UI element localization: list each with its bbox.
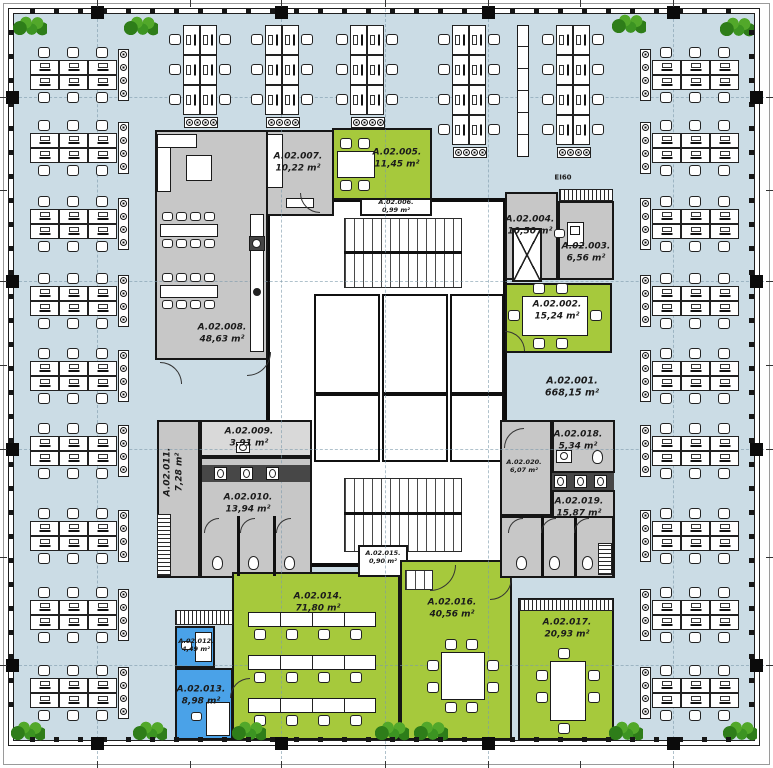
office-desk — [59, 133, 88, 148]
plant-pot-icon — [567, 149, 574, 156]
plant-pot-icon — [642, 90, 649, 97]
chair — [689, 393, 701, 404]
chair — [689, 710, 701, 721]
office-desk — [681, 361, 710, 376]
chair — [67, 423, 79, 434]
chair — [660, 393, 672, 404]
facade-mullion — [222, 737, 227, 742]
chair — [67, 196, 79, 207]
room-label-a02013: A.02.013.8,98 m² — [177, 684, 226, 707]
room-number: A.02.004. — [506, 214, 555, 226]
plant-pot-icon — [642, 150, 649, 157]
chair — [301, 94, 313, 105]
chair — [38, 273, 50, 284]
sink-basin-icon — [217, 469, 224, 478]
chair — [718, 553, 730, 564]
core-shaft-room — [382, 294, 448, 394]
office-desk — [681, 600, 710, 615]
facade-mullion — [9, 30, 14, 35]
chair — [718, 120, 730, 131]
facade-mullion — [749, 30, 754, 35]
grid-tick — [766, 665, 773, 666]
office-desk — [556, 25, 573, 55]
facade-mullion — [78, 737, 83, 742]
office-desk — [88, 224, 117, 239]
grid-tick — [0, 665, 7, 666]
office-desk — [681, 301, 710, 316]
plant-pot-icon — [120, 137, 127, 144]
office-desk — [30, 376, 59, 391]
chair — [554, 229, 565, 238]
office-desk — [710, 75, 739, 90]
office-desk — [88, 301, 117, 316]
grid-tick — [0, 281, 7, 282]
chair — [445, 702, 457, 713]
facade-mullion — [749, 702, 754, 707]
office-desk — [88, 678, 117, 693]
office-desk — [88, 536, 117, 551]
grid-tick — [0, 365, 7, 366]
chair — [67, 553, 79, 564]
chair — [689, 165, 701, 176]
plant-pot-icon — [202, 119, 209, 126]
chair — [660, 553, 672, 564]
office-desk — [710, 209, 739, 224]
chair — [487, 682, 499, 693]
chair — [592, 94, 604, 105]
room-area: 15,24 m² — [533, 311, 582, 323]
plant-pot-icon — [120, 708, 127, 715]
plant-pot-icon — [120, 213, 127, 220]
grid-tick — [0, 557, 7, 558]
room-area: 11,45 m² — [373, 159, 422, 171]
office-desk — [30, 436, 59, 451]
plant-pot-icon — [292, 119, 299, 126]
plant-pot-icon — [120, 290, 127, 297]
plant-pot-icon — [120, 352, 127, 359]
printer-icon — [570, 226, 580, 235]
grid-tick — [488, 761, 489, 768]
plant-pot-icon — [642, 239, 649, 246]
chair — [718, 508, 730, 519]
facade-mullion — [9, 702, 14, 707]
office-desk — [30, 148, 59, 163]
chair — [718, 165, 730, 176]
plant-pot-icon — [120, 604, 127, 611]
chair — [38, 241, 50, 252]
facade-mullion — [749, 78, 754, 83]
room-number: A.02.003. — [562, 241, 611, 253]
stall-partition — [237, 516, 240, 576]
chair — [67, 318, 79, 329]
room-number: A.02.001. — [545, 376, 599, 388]
plant-pot-icon — [120, 239, 127, 246]
chair — [718, 710, 730, 721]
office-desk — [652, 209, 681, 224]
plant-pot-icon — [642, 669, 649, 676]
room-area: 7,28 m² — [174, 448, 186, 497]
chair — [67, 665, 79, 676]
facade-mullion — [510, 737, 515, 742]
office-desk — [265, 55, 282, 85]
room-area: 6,56 m² — [562, 253, 611, 265]
facade-mullion — [54, 9, 59, 14]
office-desk — [710, 693, 739, 708]
chair — [592, 124, 604, 135]
chair — [176, 212, 187, 221]
office-desk — [652, 133, 681, 148]
facade-mullion — [749, 510, 754, 515]
chair — [533, 283, 545, 294]
office-desk — [88, 376, 117, 391]
chair — [718, 47, 730, 58]
plant-pot-icon — [642, 124, 649, 131]
office-desk — [652, 536, 681, 551]
column — [667, 6, 680, 19]
grid-axis — [488, 4, 489, 764]
facade-mullion — [294, 9, 299, 14]
facade-mullion — [749, 606, 754, 611]
column — [91, 737, 104, 750]
office-desk — [59, 536, 88, 551]
office-desk — [59, 286, 88, 301]
office-desk — [59, 224, 88, 239]
chair — [488, 94, 500, 105]
facade-mullion — [9, 198, 14, 203]
room-area: 20,93 m² — [543, 629, 592, 641]
chair — [487, 660, 499, 671]
office-desk — [452, 85, 469, 115]
chair — [558, 648, 570, 659]
chair — [96, 423, 108, 434]
office-desk — [556, 115, 573, 145]
facade-mullion — [749, 678, 754, 683]
chair — [254, 672, 266, 683]
chair — [190, 300, 201, 309]
chair — [660, 632, 672, 643]
chair — [689, 120, 701, 131]
plant-pot-icon — [642, 427, 649, 434]
grid-tick — [385, 0, 386, 7]
office-desk — [30, 224, 59, 239]
chair — [350, 629, 362, 640]
plant-pot-icon — [642, 604, 649, 611]
chair — [718, 318, 730, 329]
plant-pot-icon — [120, 391, 127, 398]
office-desk — [30, 693, 59, 708]
toilet-icon — [582, 556, 593, 570]
chair — [67, 468, 79, 479]
grid-axis — [4, 665, 769, 666]
facade-mullion — [726, 9, 731, 14]
facade-mullion — [126, 737, 131, 742]
chair — [718, 241, 730, 252]
wardrobe — [519, 599, 613, 611]
plant-pot-icon — [120, 200, 127, 207]
plant-pot-icon — [642, 708, 649, 715]
facade-mullion — [9, 678, 14, 683]
facade-mullion — [654, 9, 659, 14]
column — [6, 275, 19, 288]
office-desk — [88, 436, 117, 451]
chair — [350, 672, 362, 683]
office-desk — [652, 301, 681, 316]
office-desk — [30, 678, 59, 693]
grid-tick — [97, 0, 98, 7]
facade-mullion — [749, 150, 754, 155]
room-label-a02008: A.02.008.48,63 m² — [198, 322, 247, 345]
chair — [689, 196, 701, 207]
chair — [96, 632, 108, 643]
room-area: 13,94 m² — [224, 504, 273, 516]
room-label-a02014: A.02.014.71,80 m² — [294, 591, 343, 614]
facade-mullion — [9, 510, 14, 515]
facade-mullion — [749, 294, 754, 299]
plant-pot-icon — [642, 440, 649, 447]
facade-mullion — [749, 486, 754, 491]
room-number: A.02.009. — [225, 426, 274, 438]
facade-mullion — [558, 737, 563, 742]
plant-pot-icon — [120, 303, 127, 310]
grid-tick — [0, 97, 7, 98]
plant-pot-icon — [377, 119, 384, 126]
facade-mullion — [606, 737, 611, 742]
chair — [162, 300, 173, 309]
chair — [536, 670, 548, 681]
plant-pot-icon — [120, 64, 127, 71]
chair — [689, 47, 701, 58]
chair — [96, 165, 108, 176]
toilet-icon — [516, 556, 527, 570]
chair — [689, 632, 701, 643]
grid-tick — [190, 761, 191, 768]
office-desk — [710, 451, 739, 466]
facade-mullion — [9, 294, 14, 299]
office-desk — [88, 693, 117, 708]
chair — [660, 273, 672, 284]
chair — [38, 393, 50, 404]
room-number: A.02.019. — [555, 496, 604, 508]
facade-mullion — [582, 737, 587, 742]
office-desk — [556, 55, 573, 85]
office-desk — [681, 75, 710, 90]
facade-mullion — [30, 9, 35, 14]
office-desk — [652, 615, 681, 630]
room-label-a02004: A.02.004.10,50 m² — [506, 214, 555, 237]
chair — [38, 47, 50, 58]
facade-mullion — [318, 9, 323, 14]
office-desk — [59, 451, 88, 466]
plant-pot-icon — [353, 119, 360, 126]
office-desk — [469, 25, 486, 55]
office-desk — [265, 25, 282, 55]
chair — [718, 196, 730, 207]
office-desk — [88, 600, 117, 615]
office-desk — [710, 286, 739, 301]
kitchen-counter — [250, 214, 264, 352]
chair — [176, 239, 187, 248]
room-number: A.02.014. — [294, 591, 343, 603]
chair — [350, 715, 362, 726]
facade-mullion — [749, 366, 754, 371]
column — [750, 443, 763, 456]
chair — [660, 587, 672, 598]
room-area: 668,15 m² — [545, 388, 599, 400]
chair — [67, 508, 79, 519]
plant-pot-icon — [120, 378, 127, 385]
grid-tick — [766, 557, 773, 558]
facade-mullion — [582, 9, 587, 14]
shelf — [598, 543, 612, 575]
chair — [169, 64, 181, 75]
office-desk — [681, 209, 710, 224]
plant-pot-icon — [120, 90, 127, 97]
facade-mullion — [534, 737, 539, 742]
locker-cabinet — [157, 514, 171, 576]
column — [6, 91, 19, 104]
office-desk — [652, 75, 681, 90]
plant-pot-icon — [642, 466, 649, 473]
sink-basin-icon — [597, 477, 604, 486]
room-number: A.02.018. — [554, 429, 603, 441]
facade-mullion — [150, 737, 155, 742]
plant-pot-icon — [642, 51, 649, 58]
plant-pot-icon — [583, 149, 590, 156]
sink-basin-icon — [269, 469, 276, 478]
plant-pot-icon — [559, 149, 566, 156]
chair — [542, 34, 554, 45]
room-number: A.02.005. — [373, 147, 422, 159]
plant-pot-icon — [463, 149, 470, 156]
office-desk — [556, 85, 573, 115]
facade-mullion — [749, 174, 754, 179]
plant-pot-icon — [120, 682, 127, 689]
plant-icon — [11, 721, 45, 743]
plant-pot-icon — [642, 163, 649, 170]
room-label-a02017: A.02.017.20,93 m² — [543, 617, 592, 640]
office-desk — [282, 55, 299, 85]
chair — [67, 710, 79, 721]
facade-mullion — [749, 462, 754, 467]
chair — [38, 92, 50, 103]
facade-mullion — [198, 9, 203, 14]
plant-pot-icon — [120, 630, 127, 637]
plant-pot-icon — [194, 119, 201, 126]
chair — [386, 64, 398, 75]
office-desk — [200, 85, 217, 115]
facade-mullion — [749, 54, 754, 59]
plant-icon — [124, 16, 158, 38]
plant-pot-icon — [120, 365, 127, 372]
grid-tick — [673, 0, 674, 7]
office-desk — [183, 85, 200, 115]
facade-mullion — [749, 582, 754, 587]
office-desk — [59, 436, 88, 451]
grid-tick — [580, 0, 581, 7]
office-desk — [652, 224, 681, 239]
room-area: 5,34 m² — [554, 441, 603, 453]
office-desk — [681, 376, 710, 391]
facade-mullion — [78, 9, 83, 14]
chair — [542, 94, 554, 105]
room-label-a02016: A.02.016.40,56 m² — [428, 597, 477, 620]
facade-mullion — [749, 198, 754, 203]
office-desk — [710, 521, 739, 536]
plant-pot-icon — [642, 538, 649, 545]
office-desk — [652, 436, 681, 451]
office-desk — [452, 55, 469, 85]
plant-pot-icon — [120, 695, 127, 702]
chair — [38, 665, 50, 676]
stair-landing — [344, 251, 462, 254]
office-desk — [59, 301, 88, 316]
plant-pot-icon — [120, 617, 127, 624]
core-shaft-room — [450, 294, 504, 394]
chair — [254, 629, 266, 640]
room-area: 48,63 m² — [198, 334, 247, 346]
plant-pot-icon — [369, 119, 376, 126]
chair — [466, 702, 478, 713]
chair — [556, 338, 568, 349]
chair — [718, 665, 730, 676]
room-number: A.02.007. — [274, 151, 323, 163]
chair — [251, 34, 263, 45]
room-area: 15,87 m² — [555, 508, 604, 520]
office-desk — [681, 286, 710, 301]
chair — [689, 508, 701, 519]
office-desk — [88, 75, 117, 90]
office-desk — [652, 600, 681, 615]
grid-tick — [766, 97, 773, 98]
room-label-a02012: A.02.012.4,49 m² — [178, 638, 213, 654]
office-desk — [573, 115, 590, 145]
core-shaft-room — [314, 394, 380, 462]
facade-mullion — [438, 737, 443, 742]
plant-icon — [720, 17, 754, 39]
chair — [488, 34, 500, 45]
plant-pot-icon — [120, 440, 127, 447]
office-desk — [710, 301, 739, 316]
chair — [96, 92, 108, 103]
chair — [67, 587, 79, 598]
office-desk — [200, 25, 217, 55]
meeting-table — [337, 151, 375, 178]
grid-axis — [385, 4, 386, 764]
chair — [718, 587, 730, 598]
office-desk — [183, 55, 200, 85]
plant-pot-icon — [479, 149, 486, 156]
chair — [38, 632, 50, 643]
plant-pot-icon — [642, 378, 649, 385]
chair — [445, 639, 457, 650]
office-desk — [681, 678, 710, 693]
plant-pot-icon — [642, 200, 649, 207]
plant-pot-icon — [642, 391, 649, 398]
chair — [592, 34, 604, 45]
office-desk — [59, 693, 88, 708]
chair — [660, 710, 672, 721]
office-desk — [710, 148, 739, 163]
facade-mullion — [9, 246, 14, 251]
meeting-table — [550, 661, 586, 721]
facade-mullion — [294, 737, 299, 742]
dining-table — [160, 224, 218, 237]
plant-pot-icon — [642, 303, 649, 310]
chair — [191, 712, 202, 721]
chair — [386, 34, 398, 45]
office-desk — [652, 60, 681, 75]
plant-icon — [612, 14, 646, 36]
